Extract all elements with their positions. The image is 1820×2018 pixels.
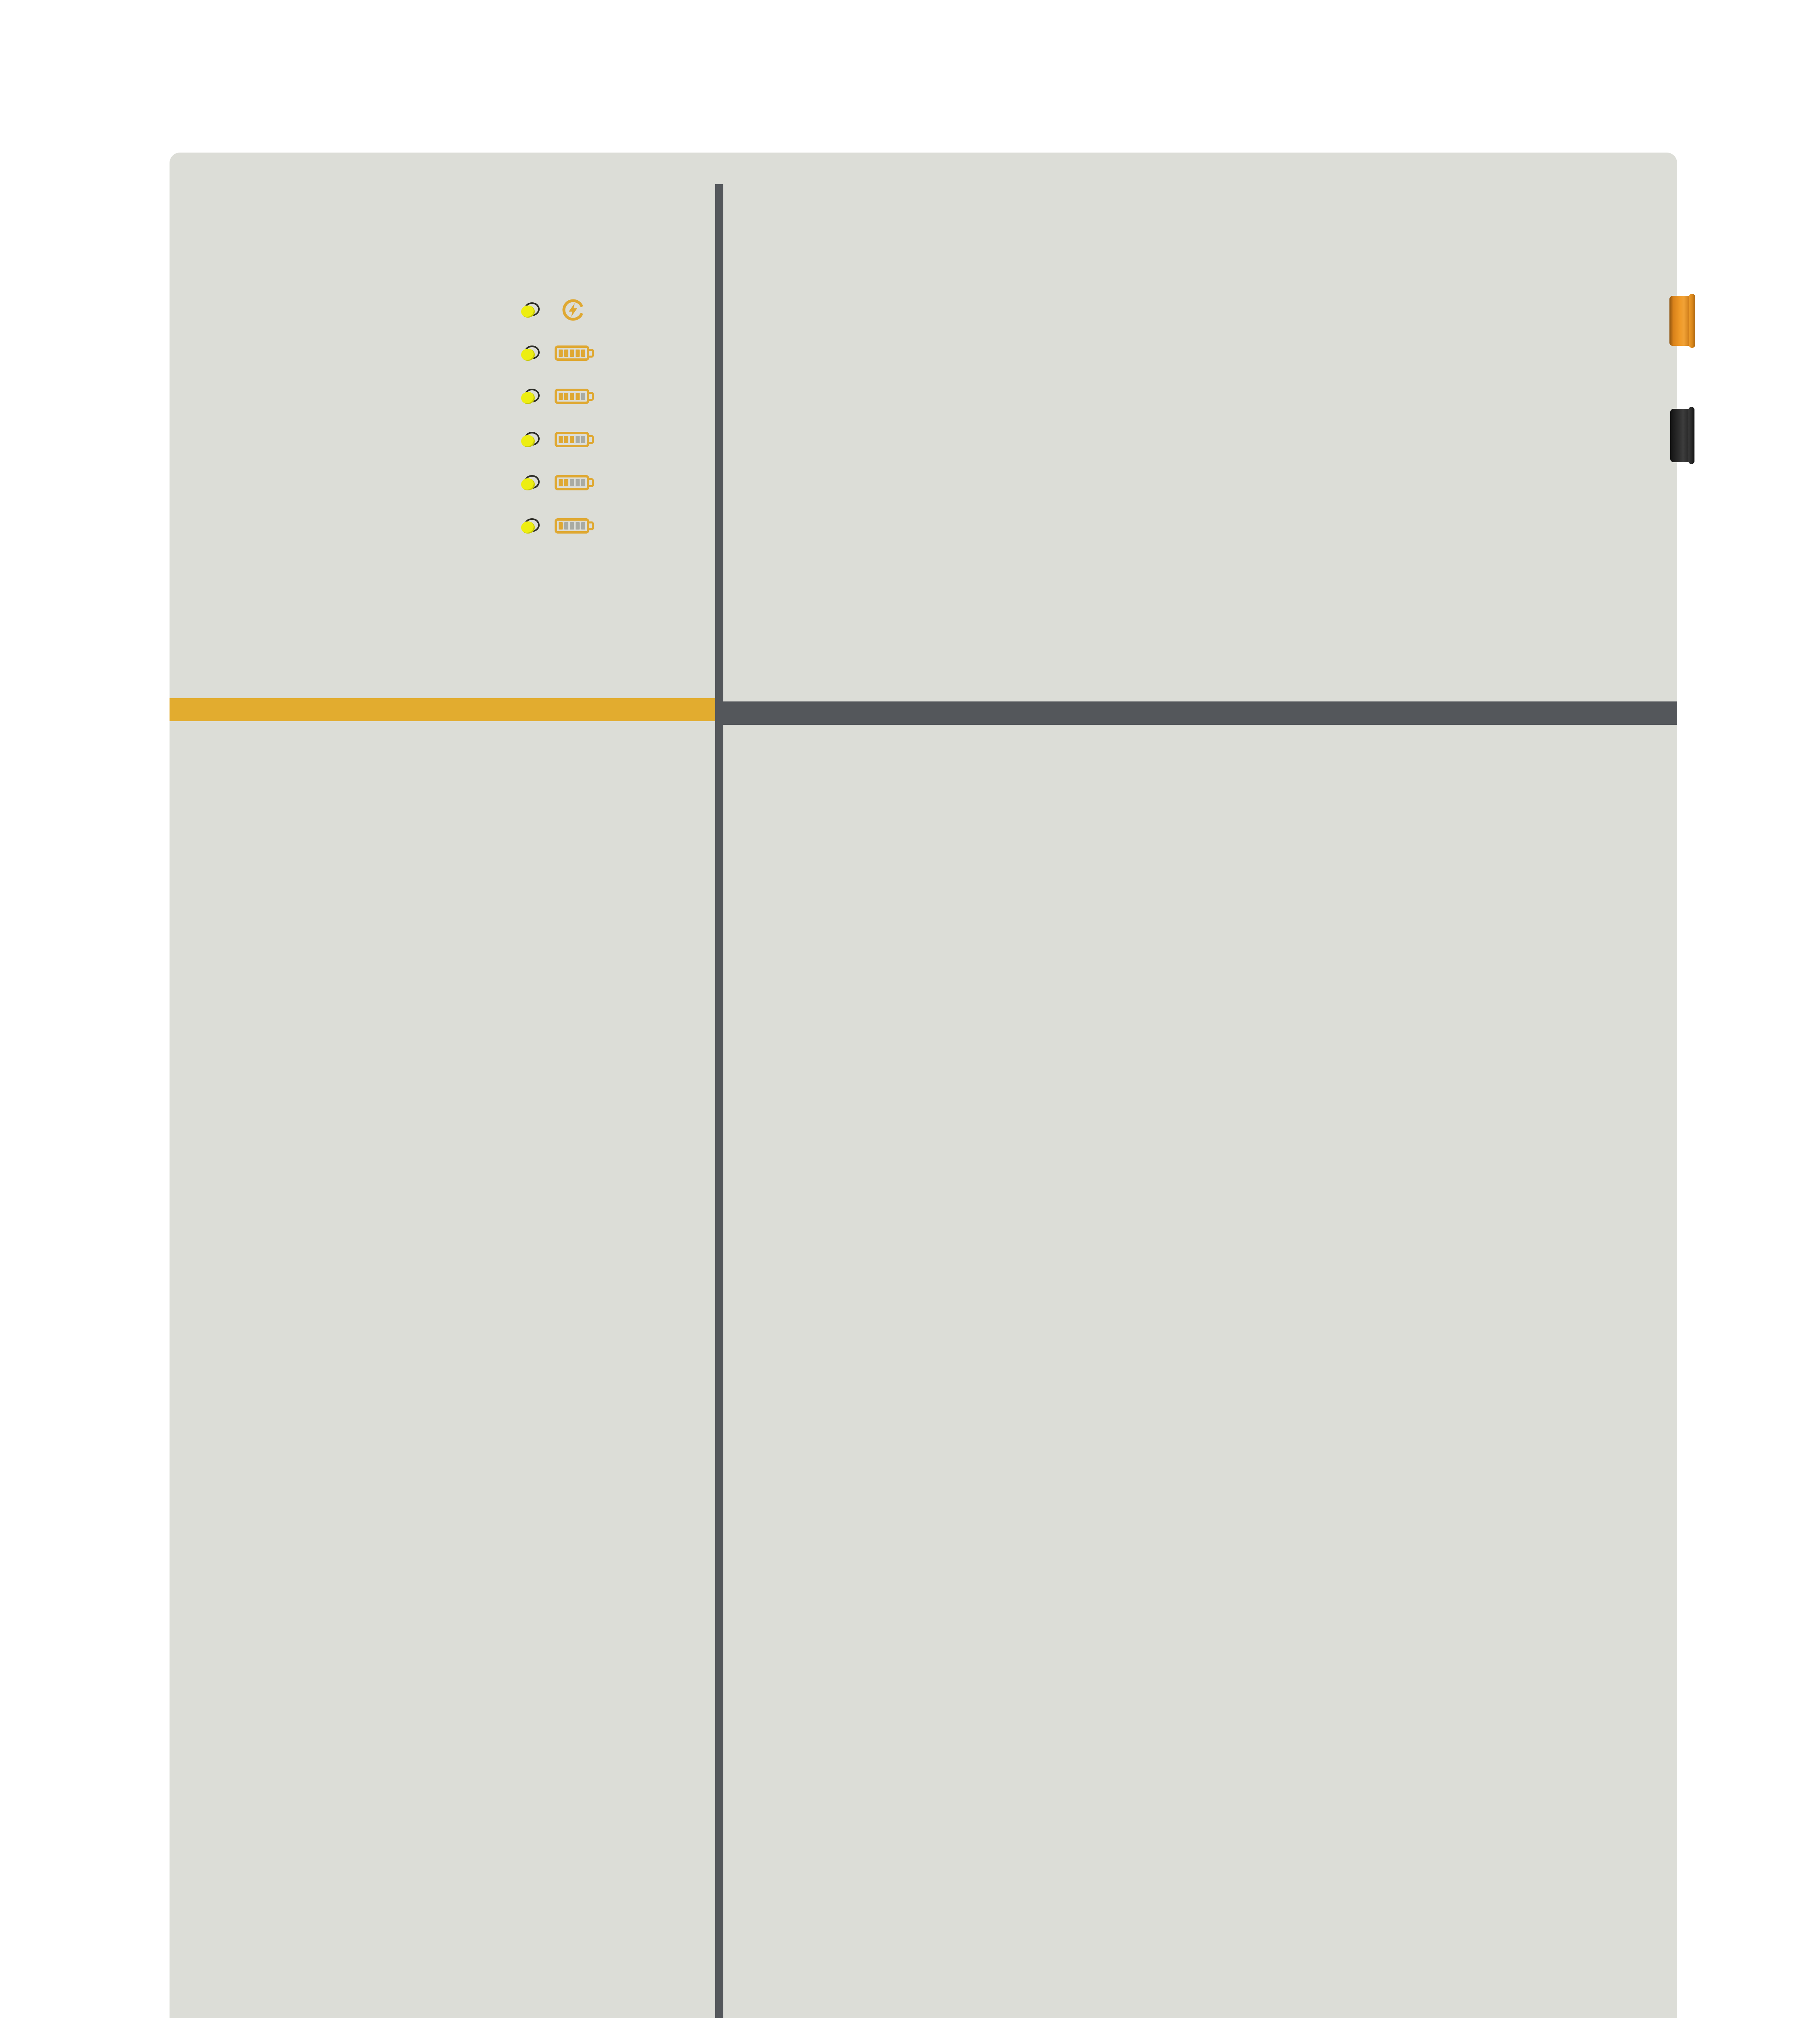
battery-segment-empty xyxy=(581,393,585,400)
led-row xyxy=(521,298,771,322)
battery-segment-filled xyxy=(576,350,580,357)
battery-segment-filled xyxy=(559,479,563,486)
status-led-on xyxy=(521,432,540,447)
battery-segment-filled xyxy=(559,436,563,443)
led-bulb xyxy=(521,349,535,361)
battery-segment-empty xyxy=(570,479,574,486)
led-bulb xyxy=(521,478,535,490)
battery-level-icon-1 xyxy=(555,518,589,534)
led-row xyxy=(521,514,771,538)
led-row xyxy=(521,341,771,365)
black-knob xyxy=(1670,409,1694,462)
battery-level-icon-4 xyxy=(555,389,589,404)
battery-segment-filled xyxy=(581,350,585,357)
led-icon-cell xyxy=(555,475,589,490)
led-icon-cell xyxy=(555,389,589,404)
battery-segment-filled xyxy=(576,393,580,400)
led-icon-cell xyxy=(555,345,589,361)
status-led-on xyxy=(521,475,540,490)
battery-segment-filled xyxy=(564,393,568,400)
battery-segment-filled xyxy=(570,436,574,443)
battery-segment-filled xyxy=(570,393,574,400)
battery-segment-filled xyxy=(564,436,568,443)
led-icon-cell xyxy=(555,432,589,447)
battery-segment-empty xyxy=(576,522,580,530)
led-bulb xyxy=(521,306,535,318)
led-icon-cell xyxy=(555,518,589,534)
status-led-on xyxy=(521,345,540,361)
orange-connector xyxy=(1669,296,1694,346)
yellow-accent-stripe xyxy=(170,698,715,721)
led-status-panel xyxy=(521,286,779,540)
battery-segment-empty xyxy=(576,479,580,486)
battery-segment-empty xyxy=(576,436,580,443)
battery-segment-empty xyxy=(564,522,568,530)
battery-segment-filled xyxy=(570,350,574,357)
battery-segment-empty xyxy=(581,436,585,443)
led-bulb xyxy=(521,521,535,534)
battery-level-icon-2 xyxy=(555,475,589,490)
led-row xyxy=(521,471,771,495)
led-bulb xyxy=(521,392,535,404)
dark-accent-stripe xyxy=(715,701,1677,725)
battery-segment-empty xyxy=(570,522,574,530)
battery-segment-empty xyxy=(581,522,585,530)
battery-cabinet: TRIPLE POWER xyxy=(170,153,1677,2018)
status-led-on xyxy=(521,518,540,534)
charge-circle-icon xyxy=(561,298,585,322)
battery-segment-filled xyxy=(564,350,568,357)
status-led-on xyxy=(521,302,540,318)
battery-segment-filled xyxy=(564,479,568,486)
led-icon-cell xyxy=(555,298,585,322)
led-row xyxy=(521,384,771,408)
battery-segment-empty xyxy=(581,479,585,486)
led-bulb xyxy=(521,435,535,447)
battery-level-icon-3 xyxy=(555,432,589,447)
status-led-on xyxy=(521,389,540,404)
battery-level-icon-5 xyxy=(555,345,589,361)
battery-segment-filled xyxy=(559,393,563,400)
product-photo: TRIPLE POWER xyxy=(0,0,1820,2018)
battery-segment-filled xyxy=(559,350,563,357)
battery-segment-filled xyxy=(559,522,563,530)
led-row xyxy=(521,427,771,452)
